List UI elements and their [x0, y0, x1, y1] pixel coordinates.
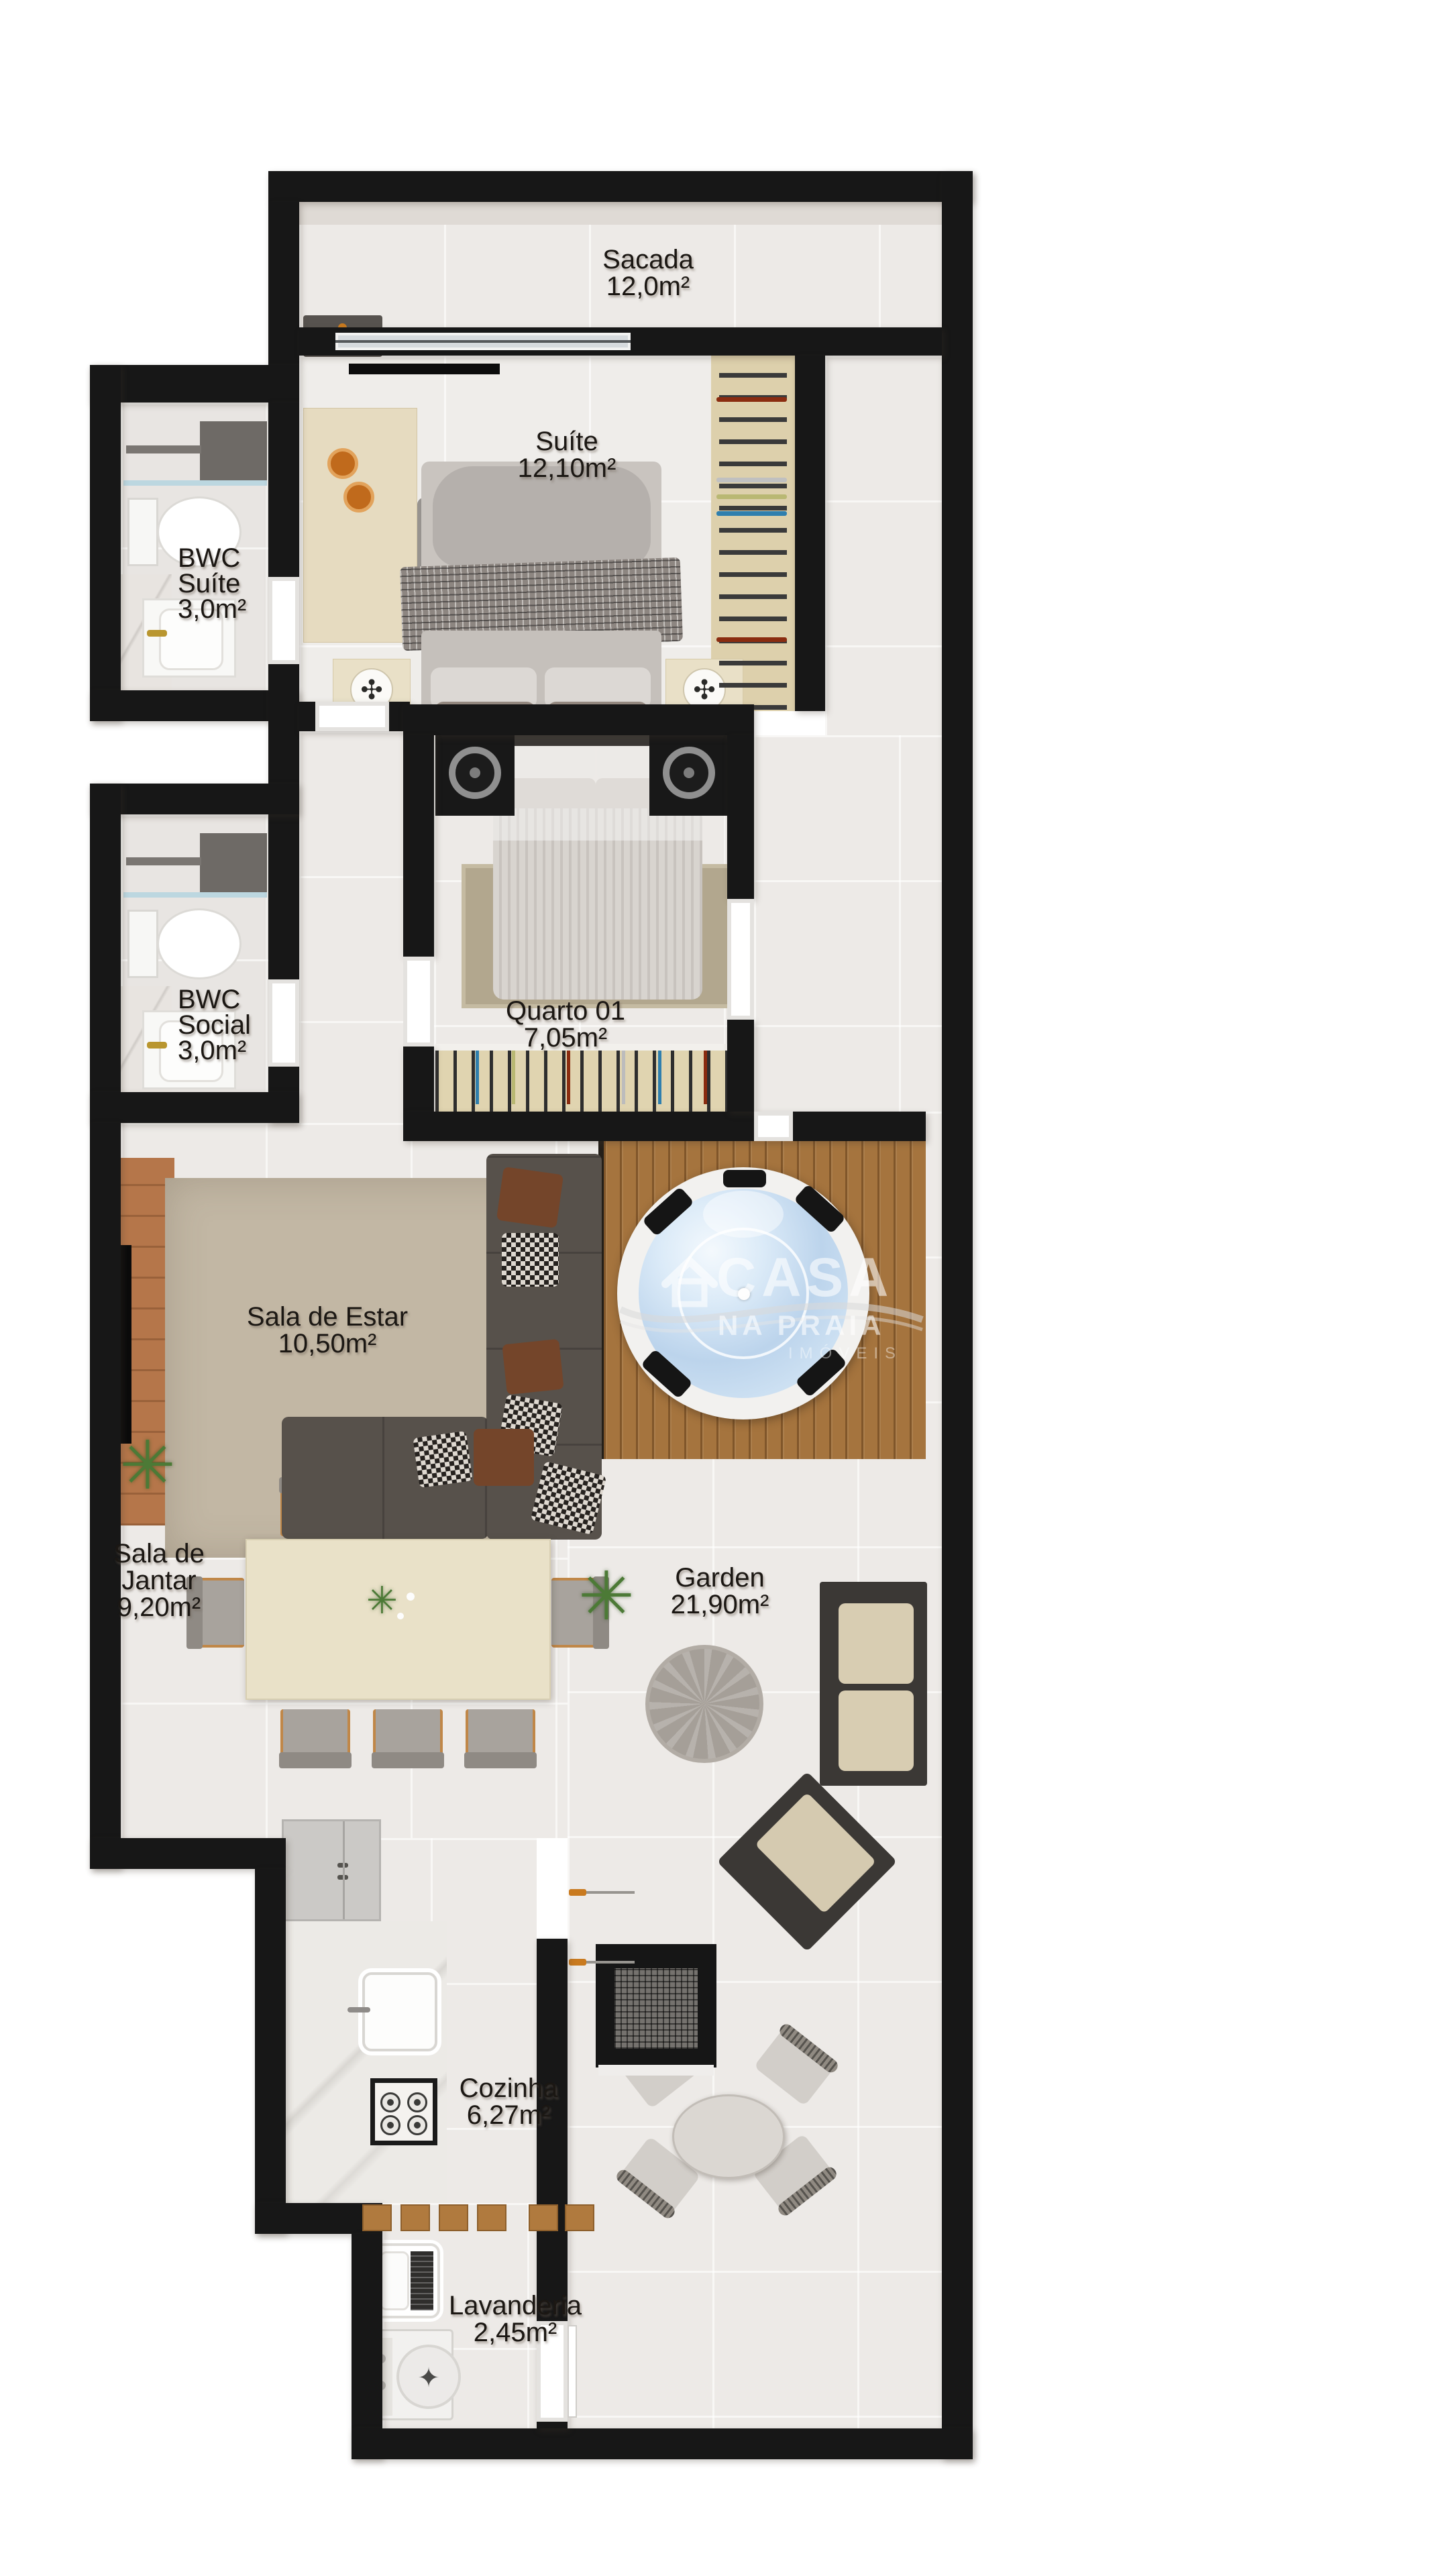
skewer-handle	[569, 1889, 586, 1896]
burner-icon	[380, 2092, 400, 2112]
fridge	[282, 1819, 381, 1921]
floor-plan-render: ✣ ✣	[0, 0, 1449, 2576]
wall-segment	[352, 2234, 382, 2459]
room-label-suite: Suíte12,10m²	[518, 428, 616, 482]
grill-grate	[614, 1968, 698, 2049]
wall-segment	[255, 1869, 286, 2234]
hanger-blue	[716, 511, 787, 516]
grill-counter	[598, 2065, 714, 2076]
suite-tv	[349, 364, 500, 374]
quarto-nightstand-left	[435, 730, 515, 816]
hanger-red	[704, 1051, 707, 1104]
table-flower	[397, 1613, 404, 1619]
room-label-quarto-01: Quarto 017,05m²	[506, 998, 625, 1051]
dining-table: ✳	[246, 1539, 551, 1700]
plant-icon: ✳	[119, 1432, 176, 1499]
corridor-floor-lower	[754, 735, 942, 1112]
bar-stool	[477, 2204, 506, 2231]
chair-back	[372, 1752, 444, 1768]
table-plant-icon: ✳	[366, 1582, 398, 1619]
room-label-lavanderia: Lavanderia2,45m²	[449, 2292, 582, 2346]
gold-faucet	[147, 1042, 167, 1049]
toilet-bowl	[157, 908, 241, 979]
watermark-subtitle: IMÓVEIS	[788, 1344, 902, 1363]
room-label-bwc-suite: BWCSuíte3,0m²	[178, 545, 246, 622]
toilet-tank	[127, 498, 158, 566]
quarto-door-opening	[403, 957, 434, 1046]
room-label-cozinha: Cozinha6,27m²	[460, 2075, 558, 2129]
corridor-garden-opening	[754, 1112, 793, 1141]
burner-icon	[407, 2092, 427, 2112]
wall-segment	[727, 1020, 754, 1112]
plant-icon: ✳	[578, 1563, 635, 1630]
room-label-sacada: Sacada12,0m²	[602, 246, 694, 300]
kitchen-sink	[362, 1972, 437, 2051]
shower-arm	[126, 445, 201, 453]
watermark-tagline: NA PRAIA	[718, 1309, 885, 1342]
quarto-window-opening	[727, 899, 754, 1020]
hanger-gray	[716, 478, 787, 482]
hanger-blue	[476, 1051, 479, 1104]
wall-segment	[90, 365, 121, 721]
kitchen-counter	[286, 1921, 447, 2203]
wall-segment	[403, 704, 754, 735]
watermark-brand: CASA	[716, 1246, 894, 1309]
sofa-cushion-brown	[496, 1167, 563, 1228]
bar-stool	[439, 2204, 468, 2231]
garden-sofa-cushion	[839, 1603, 914, 1684]
house-logo-icon	[665, 1261, 714, 1304]
balcony-sliding-door	[335, 333, 631, 350]
bwc-social-door-opening	[268, 979, 299, 1067]
sofa-cushion-pattern	[502, 1233, 559, 1287]
laundry-tank-sink	[373, 2243, 440, 2318]
shower-head	[200, 421, 267, 480]
hanger-blue	[658, 1051, 661, 1104]
wall-segment	[90, 1123, 121, 1869]
quarto-closet-hangers	[435, 1051, 754, 1112]
sofa-cushion-brown	[502, 1339, 563, 1395]
burner-icon	[407, 2115, 427, 2135]
skewer-rod	[586, 1961, 635, 1964]
fridge-handle	[337, 1875, 348, 1880]
speaker-decor-icon	[449, 747, 501, 799]
room-label-garden: Garden21,90m²	[671, 1564, 769, 1618]
skewer-handle	[569, 1959, 586, 1966]
balcony-sill	[299, 202, 942, 225]
wall-segment	[942, 171, 973, 2459]
suite-desk	[303, 408, 417, 643]
bar-stool	[529, 2204, 558, 2231]
wall-segment	[268, 202, 299, 365]
hanger-olive	[716, 494, 787, 499]
washer-drum-icon: ✦	[396, 2345, 461, 2409]
garden-sofa-cushion	[839, 1690, 914, 1771]
garden-round-table	[672, 2094, 785, 2179]
dining-chair	[280, 1709, 350, 1762]
bwc-suite-door-opening	[268, 577, 299, 664]
hanger-red	[567, 1051, 570, 1104]
shower-glass	[123, 892, 267, 898]
gold-faucet	[147, 630, 167, 637]
room-label-sala-de-jantar: Sala deJantar9,20m²	[113, 1540, 205, 1621]
speaker-decor-icon	[663, 747, 715, 799]
bar-stool	[565, 2204, 594, 2231]
wall-segment	[90, 784, 299, 814]
bar-stool	[362, 2204, 392, 2231]
quarto-night​stand-right	[649, 730, 729, 816]
shower-glass	[123, 480, 267, 486]
breakfast-plate	[343, 482, 374, 513]
tank-basin	[380, 2251, 409, 2310]
wall-segment	[352, 2428, 973, 2459]
hanger-red	[716, 637, 787, 642]
dining-chair	[466, 1709, 535, 1762]
shower-arm	[126, 857, 201, 865]
breakfast-plate	[327, 448, 358, 479]
hall-floor	[299, 731, 403, 1123]
dining-chair	[373, 1709, 443, 1762]
wall-segment	[90, 1838, 286, 1869]
wall-segment	[90, 1092, 299, 1123]
chair-back	[279, 1752, 352, 1768]
room-label-bwc-social: BWCSocial3,0m²	[178, 987, 251, 1063]
wall-segment	[90, 784, 121, 1123]
table-flower	[407, 1593, 415, 1601]
bar-stool	[400, 2204, 430, 2231]
hot-tub-headrest	[723, 1170, 766, 1187]
garden-round-rug	[645, 1645, 763, 1763]
room-label-sala-de-estar: Sala de Estar10,50m²	[247, 1303, 408, 1357]
skewer-rod	[586, 1891, 635, 1894]
sofa-cushion-pattern	[413, 1431, 473, 1488]
wall-segment	[795, 356, 825, 711]
chair-back	[464, 1752, 537, 1768]
wall-segment	[403, 1046, 434, 1114]
garden-sofa	[820, 1582, 927, 1786]
suite-closet-hangers	[711, 356, 795, 711]
faucet	[347, 2007, 370, 2012]
wall-segment	[403, 1112, 926, 1141]
burner-icon	[380, 2115, 400, 2135]
suite-door-opening	[315, 702, 389, 731]
wall-segment	[268, 171, 973, 202]
hanger-rods	[719, 356, 787, 711]
hanger-olive	[512, 1051, 515, 1104]
watermark: CASA NA PRAIA IMÓVEIS	[617, 1242, 926, 1390]
cooktop	[370, 2078, 437, 2145]
wall-segment	[403, 735, 434, 957]
sofa-cushion-brown	[474, 1429, 534, 1486]
hanger-gray	[622, 1051, 625, 1104]
wall-segment	[90, 365, 299, 402]
fridge-handle	[337, 1863, 348, 1868]
hanger-red	[716, 397, 787, 402]
tank-washboard	[411, 2251, 433, 2310]
toilet-tank	[127, 910, 158, 978]
shower-head	[200, 833, 267, 892]
quarto-pillow	[504, 746, 595, 780]
wall-segment	[727, 735, 754, 899]
